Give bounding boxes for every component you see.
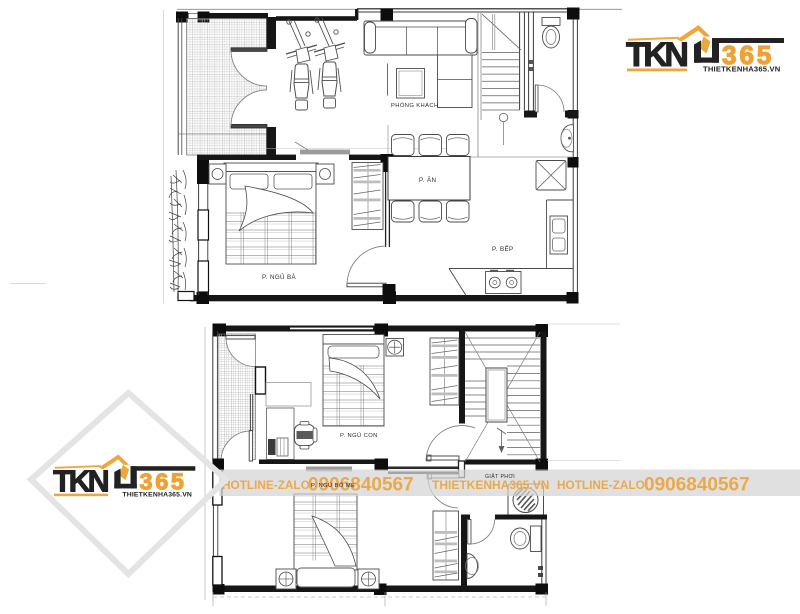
svg-text:P. NGỦ CON: P. NGỦ CON [340,432,378,439]
svg-text:P. NGỦ BỐ MẸ: P. NGỦ BỐ MẸ [311,482,355,489]
svg-text:HOTLINE-ZALO:: HOTLINE-ZALO: [222,478,314,492]
svg-text:HOTLINE-ZALO:: HOTLINE-ZALO: [557,478,649,492]
svg-text:P. ĂN: P. ĂN [419,177,436,184]
svg-text:PHÒNG KHÁCH: PHÒNG KHÁCH [391,102,439,109]
svg-text:0906840567: 0906840567 [644,475,750,496]
svg-text:GIẶT PHƠI: GIẶT PHƠI [485,473,515,480]
svg-text:P. NGỦ BÀ: P. NGỦ BÀ [262,274,297,281]
svg-text:P. BẾP: P. BẾP [492,246,514,253]
svg-text:THIETKENHA365.VN: THIETKENHA365.VN [432,478,549,492]
